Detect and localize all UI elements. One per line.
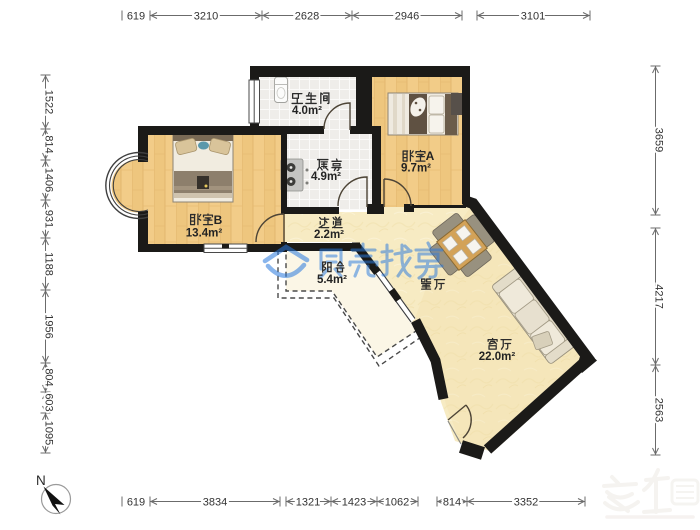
svg-text:3101: 3101	[521, 11, 545, 23]
svg-text:3659: 3659	[653, 128, 665, 152]
svg-text:3210: 3210	[194, 11, 218, 23]
svg-text:22.0m²: 22.0m²	[479, 351, 516, 363]
svg-text:619: 619	[127, 497, 145, 509]
svg-text:1062: 1062	[385, 497, 409, 509]
svg-text:3352: 3352	[514, 497, 538, 509]
svg-text:2946: 2946	[395, 11, 419, 23]
svg-text:619: 619	[127, 11, 145, 23]
svg-text:13.4m²: 13.4m²	[186, 228, 223, 240]
svg-text:5.4m²: 5.4m²	[317, 274, 347, 286]
svg-text:1095: 1095	[43, 421, 55, 445]
svg-text:1406: 1406	[43, 168, 55, 192]
svg-text:1321: 1321	[296, 497, 320, 509]
svg-text:1522: 1522	[43, 90, 55, 114]
svg-text:931: 931	[43, 210, 55, 228]
svg-text:1423: 1423	[342, 497, 366, 509]
svg-text:4.0m²: 4.0m²	[292, 105, 322, 117]
svg-text:814: 814	[443, 497, 461, 509]
svg-text:4217: 4217	[653, 284, 665, 308]
svg-text:1188: 1188	[43, 252, 55, 276]
svg-text:2628: 2628	[295, 11, 319, 23]
svg-text:A: A	[426, 149, 435, 163]
svg-text:804: 804	[43, 368, 55, 386]
svg-text:3834: 3834	[203, 497, 227, 509]
svg-text:1956: 1956	[43, 314, 55, 338]
svg-text:N: N	[36, 473, 46, 488]
svg-text:2563: 2563	[653, 398, 665, 422]
svg-text:603: 603	[43, 393, 55, 411]
svg-text:814: 814	[43, 135, 55, 153]
svg-text:4.9m²: 4.9m²	[311, 171, 341, 183]
svg-text:9.7m²: 9.7m²	[401, 163, 431, 175]
svg-text:2.2m²: 2.2m²	[314, 229, 344, 241]
svg-text:B: B	[214, 213, 223, 227]
